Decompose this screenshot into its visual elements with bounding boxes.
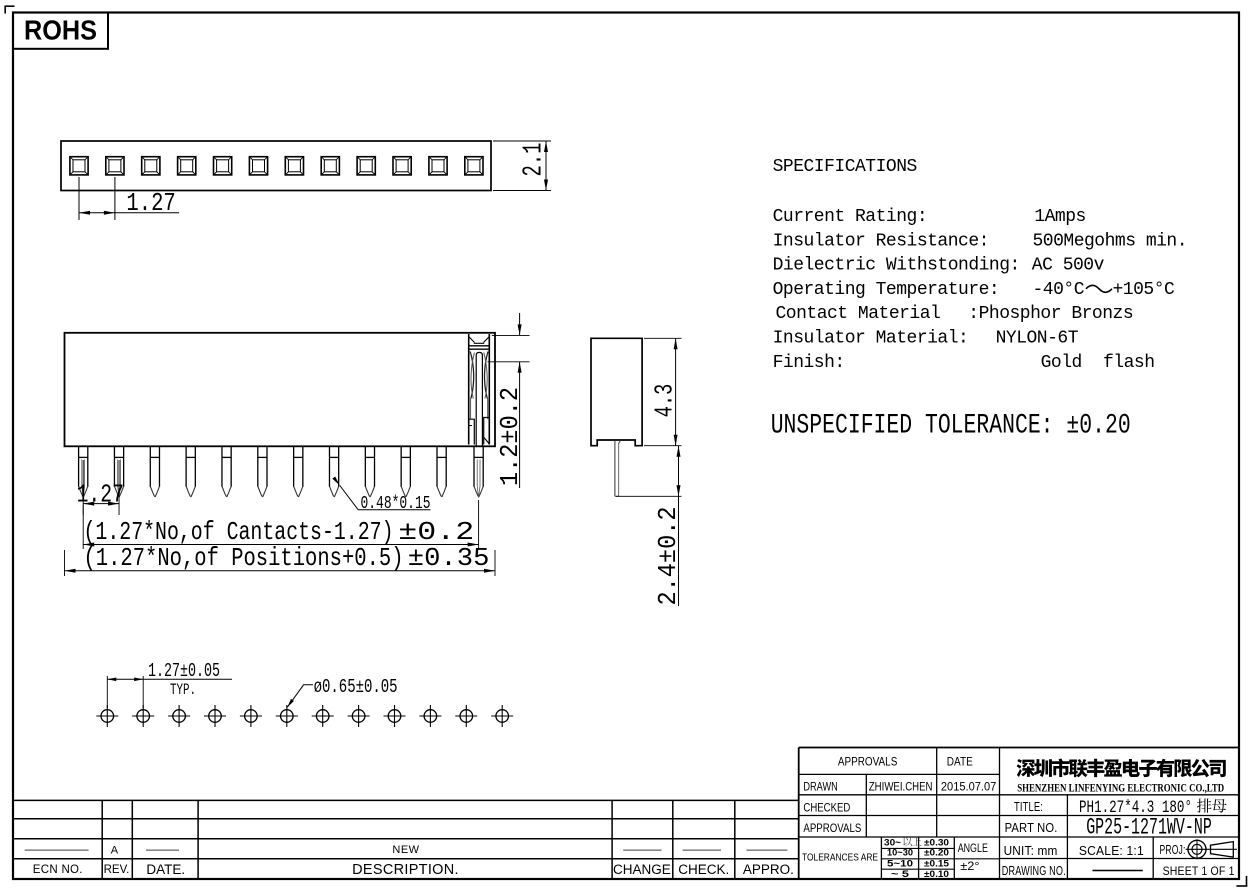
svg-text:Gold: Gold <box>1041 353 1082 373</box>
svg-text:A: A <box>111 845 119 857</box>
svg-text:Current Rating:: Current Rating: <box>773 207 928 227</box>
svg-text:10~30: 10~30 <box>887 848 913 859</box>
svg-text:CHECK.: CHECK. <box>678 862 729 877</box>
svg-text:±0.15: ±0.15 <box>924 859 950 870</box>
svg-text:PART NO.: PART NO. <box>1005 821 1058 835</box>
svg-text:1.27: 1.27 <box>126 188 175 218</box>
svg-text:ø0.65±0.05: ø0.65±0.05 <box>314 676 398 698</box>
svg-text:SHEET 1 OF 1: SHEET 1 OF 1 <box>1163 864 1235 878</box>
svg-text:ECN NO.: ECN NO. <box>33 864 83 876</box>
svg-text:500Megohms min.: 500Megohms min. <box>1033 231 1188 251</box>
svg-text:CHANGE.: CHANGE. <box>613 862 675 877</box>
svg-text:DATE: DATE <box>947 757 973 769</box>
svg-text:DRAWING NO.: DRAWING NO. <box>1002 864 1066 878</box>
svg-text:APPROVALS: APPROVALS <box>838 757 898 769</box>
svg-text:1Amps: 1Amps <box>1034 207 1086 227</box>
svg-text:1.2±0.2: 1.2±0.2 <box>495 387 525 486</box>
svg-text:ROHS: ROHS <box>24 15 97 46</box>
svg-text:1.27: 1.27 <box>77 479 124 509</box>
svg-text:TITLE:: TITLE: <box>1014 800 1043 814</box>
svg-text:±0.35: ±0.35 <box>408 543 490 573</box>
svg-text:~ 5: ~ 5 <box>891 869 910 880</box>
svg-text:2.1: 2.1 <box>520 143 550 177</box>
svg-text:flash: flash <box>1103 353 1155 373</box>
svg-text:APPROVALS: APPROVALS <box>803 823 861 835</box>
svg-text:2.4±0.2: 2.4±0.2 <box>653 507 683 606</box>
svg-text:±2°: ±2° <box>960 861 979 873</box>
svg-text:ANGLE: ANGLE <box>958 843 988 855</box>
svg-text:Insulator Material:: Insulator Material: <box>773 329 969 349</box>
svg-text:SHENZHEN LINFENYING ELECTRONIC: SHENZHEN LINFENYING ELECTRONIC CO.,LTD <box>1017 780 1224 794</box>
svg-text:DATE.: DATE. <box>146 862 185 877</box>
svg-text:TOLERANCES ARE: TOLERANCES ARE <box>802 852 878 864</box>
svg-text:(1.27*No,of Positions+0.5): (1.27*No,of Positions+0.5) <box>84 543 404 573</box>
svg-text:DESCRIPTION.: DESCRIPTION. <box>352 862 459 878</box>
svg-text:-40°C: -40°C <box>1033 280 1085 300</box>
svg-text:Insulator Resistance:: Insulator Resistance: <box>773 231 989 251</box>
svg-text:TYP.: TYP. <box>170 681 196 699</box>
svg-text:Dielectric Withstonding:: Dielectric Withstonding: <box>773 256 1020 276</box>
svg-text:PROJ:: PROJ: <box>1160 843 1186 857</box>
svg-text:GP25-1271WV-NP: GP25-1271WV-NP <box>1086 815 1212 841</box>
svg-text:1.27±0.05: 1.27±0.05 <box>148 660 220 682</box>
svg-text:APPRO.: APPRO. <box>743 862 794 877</box>
svg-text:NYLON-6T: NYLON-6T <box>996 329 1079 349</box>
svg-text:SCALE: 1:1: SCALE: 1:1 <box>1079 844 1144 858</box>
svg-text:+105°C: +105°C <box>1113 280 1176 300</box>
svg-text:NEW: NEW <box>392 844 419 856</box>
svg-text:ZHIWEI.CHEN: ZHIWEI.CHEN <box>869 781 933 793</box>
svg-text:UNSPECIFIED TOLERANCE: ±0.20: UNSPECIFIED TOLERANCE: ±0.20 <box>771 411 1131 442</box>
svg-text:REV.: REV. <box>104 864 130 876</box>
svg-text:5~10: 5~10 <box>887 859 913 870</box>
svg-text:±0.20: ±0.20 <box>924 848 949 859</box>
svg-text:4.3: 4.3 <box>650 384 680 418</box>
svg-text:SPECIFICATIONS: SPECIFICATIONS <box>773 157 917 177</box>
svg-text:CHECKED: CHECKED <box>803 802 850 814</box>
svg-text:DRAWN: DRAWN <box>803 781 837 793</box>
svg-text:0.48*0.15: 0.48*0.15 <box>361 493 431 514</box>
svg-text::Phosphor Bronzs: :Phosphor Bronzs <box>968 304 1133 324</box>
svg-text:UNIT: mm: UNIT: mm <box>1004 844 1058 858</box>
svg-text:Operating Temperature:: Operating Temperature: <box>773 280 1000 300</box>
svg-text:±0.10: ±0.10 <box>924 869 949 880</box>
svg-text:AC 500v: AC 500v <box>1032 256 1105 276</box>
svg-text:Contact Material: Contact Material <box>776 304 941 324</box>
svg-text:2015.07.07: 2015.07.07 <box>941 781 996 793</box>
svg-text:Finish:: Finish: <box>773 353 845 373</box>
